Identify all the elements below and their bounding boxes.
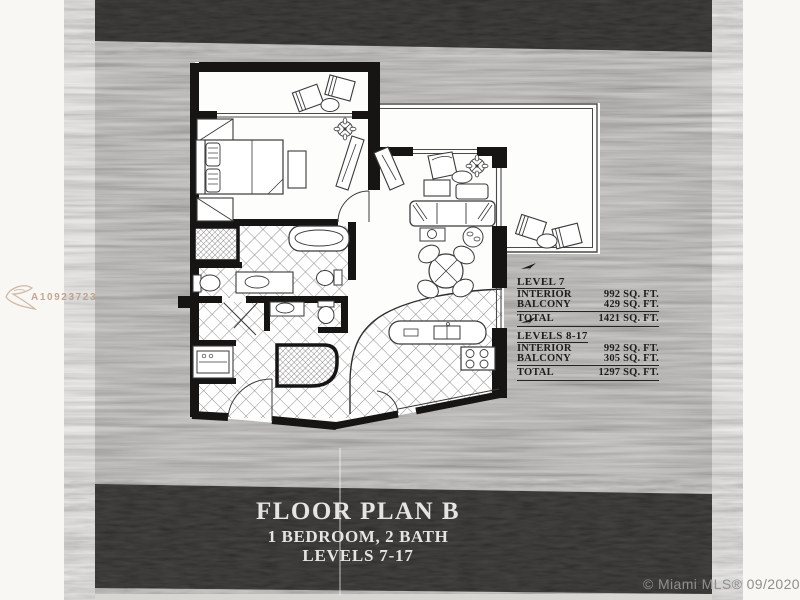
round-table xyxy=(463,227,483,247)
toilet xyxy=(334,270,342,285)
patio-table xyxy=(321,99,339,112)
table-row: TOTAL 1297 SQ. FT. xyxy=(517,366,659,380)
row-value: 1297 SQ. FT. xyxy=(598,369,659,378)
north-arrow-icon xyxy=(521,262,537,271)
paper-crease xyxy=(339,448,341,595)
bench xyxy=(288,151,306,188)
table-row: BALCONY 429 SQ. FT. xyxy=(517,300,659,312)
pillow xyxy=(206,169,220,192)
plan-title: FLOOR PLAN B xyxy=(237,498,479,525)
shower xyxy=(277,345,337,386)
area-table-levels-8-17: LEVELS 8-17 INTERIOR 992 SQ. FT. BALCONY… xyxy=(517,316,659,381)
listing-id-watermark: A10923723 xyxy=(31,292,97,303)
table-heading: LEVEL 7 xyxy=(517,277,565,289)
plan-configuration: 1 BEDROOM, 2 BATH xyxy=(237,527,479,546)
shower xyxy=(194,227,238,261)
table-heading: LEVELS 8-17 xyxy=(517,331,588,343)
table-row: BALCONY 305 SQ. FT. xyxy=(517,354,659,366)
row-value: 305 SQ. FT. xyxy=(604,355,659,364)
row-label: BALCONY xyxy=(517,301,571,310)
ottoman xyxy=(456,184,488,199)
pillow xyxy=(206,143,220,166)
row-value: 429 SQ. FT. xyxy=(604,301,659,310)
mls-credit-watermark: © Miami MLS® 09/2020 xyxy=(612,576,800,592)
plan-levels: LEVELS 7-17 xyxy=(237,546,479,565)
laundry-closet xyxy=(193,346,233,378)
title-block: FLOOR PLAN B 1 BEDROOM, 2 BATH LEVELS 7-… xyxy=(237,498,479,565)
patio-table xyxy=(537,234,557,248)
north-arrow-icon xyxy=(521,316,537,325)
side-table xyxy=(452,171,472,183)
row-label: BALCONY xyxy=(517,355,571,364)
coffee-table xyxy=(424,180,450,196)
row-label: TOTAL xyxy=(517,369,554,378)
mls-listing-photo: LEVEL 7 INTERIOR 992 SQ. FT. BALCONY 429… xyxy=(0,0,800,600)
headboard xyxy=(196,140,205,194)
stove xyxy=(461,347,495,370)
